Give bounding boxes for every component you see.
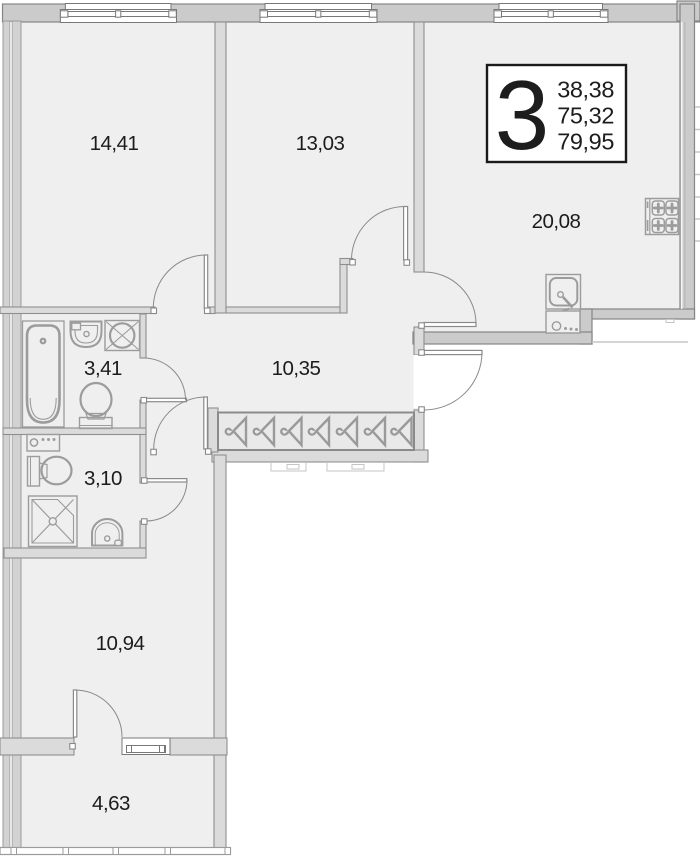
svg-text:20,08: 20,08 (532, 210, 581, 233)
svg-text:79,95: 79,95 (557, 129, 614, 155)
svg-text:4,63: 4,63 (92, 792, 130, 815)
svg-text:3,41: 3,41 (84, 357, 122, 380)
svg-text:10,35: 10,35 (272, 357, 321, 380)
svg-text:13,03: 13,03 (296, 132, 345, 155)
svg-text:10,94: 10,94 (96, 632, 145, 655)
svg-text:75,32: 75,32 (557, 103, 614, 129)
svg-text:3: 3 (495, 60, 550, 170)
svg-text:3,10: 3,10 (84, 467, 122, 490)
svg-text:14,41: 14,41 (90, 132, 139, 155)
svg-text:38,38: 38,38 (557, 77, 614, 103)
